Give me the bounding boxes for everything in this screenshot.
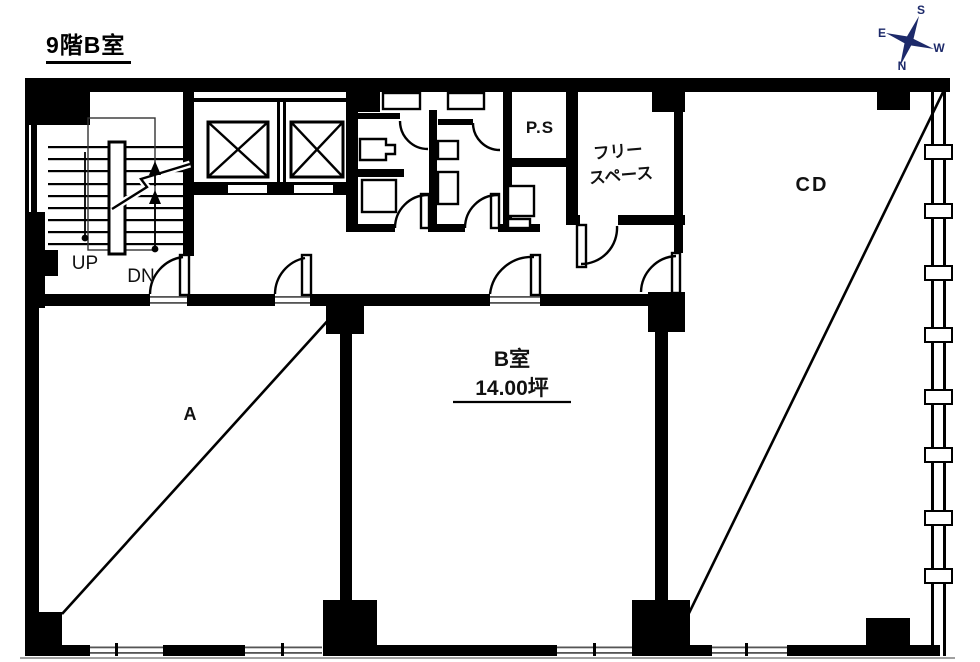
exterior-walls	[25, 78, 950, 656]
compass-n: N	[898, 59, 907, 73]
compass-rose: S E W N	[878, 3, 945, 73]
up-label: UP	[72, 253, 98, 274]
duct-box	[508, 219, 530, 228]
door-arc	[150, 257, 183, 294]
room-b-name-label: B室	[494, 347, 530, 371]
door-arc	[641, 256, 676, 292]
interior-walls	[38, 84, 685, 600]
door-arc	[473, 123, 500, 150]
free-space-label-line2: スペース	[588, 164, 653, 188]
door-leaf	[180, 255, 189, 295]
ground-line	[20, 657, 955, 659]
cd-room-label: CD	[796, 174, 829, 196]
floor-plan-page: 9階B室	[0, 0, 980, 662]
floor-plan-svg: S E W N UP DN P.S フリー スペース CD A B室 14.00…	[0, 0, 980, 662]
cd-diagonal	[672, 84, 947, 648]
compass-e: E	[878, 26, 886, 40]
door-leaf	[672, 253, 680, 293]
door-arc	[400, 121, 428, 149]
compass-star-icon	[886, 16, 934, 66]
room-a-label: A	[184, 404, 197, 424]
door-arc	[275, 258, 305, 294]
door-leaf	[577, 225, 586, 267]
ps-label: P.S	[526, 118, 554, 137]
vent-window	[448, 93, 484, 109]
elevator-door	[227, 184, 268, 194]
dn-label: DN	[127, 266, 154, 287]
door-arc	[490, 257, 534, 294]
elevator-door	[293, 184, 334, 194]
vent-window	[383, 93, 420, 109]
compass-w: W	[933, 41, 945, 55]
staircase	[48, 118, 190, 254]
right-wall-mullions	[925, 145, 952, 583]
sink	[360, 139, 395, 160]
free-space-label-line1: フリー	[593, 141, 644, 163]
door-leaf	[421, 194, 429, 228]
door-leaf	[302, 255, 311, 295]
room-b-area-label: 14.00坪	[475, 377, 549, 400]
duct-box	[508, 186, 534, 216]
compass-s: S	[917, 3, 925, 17]
counter	[356, 169, 404, 177]
door-leaf	[531, 255, 540, 295]
toilet	[438, 141, 458, 159]
toilet	[438, 172, 458, 204]
toilet	[362, 180, 396, 212]
door-leaf	[491, 194, 499, 228]
room-a-diagonal	[62, 306, 341, 614]
